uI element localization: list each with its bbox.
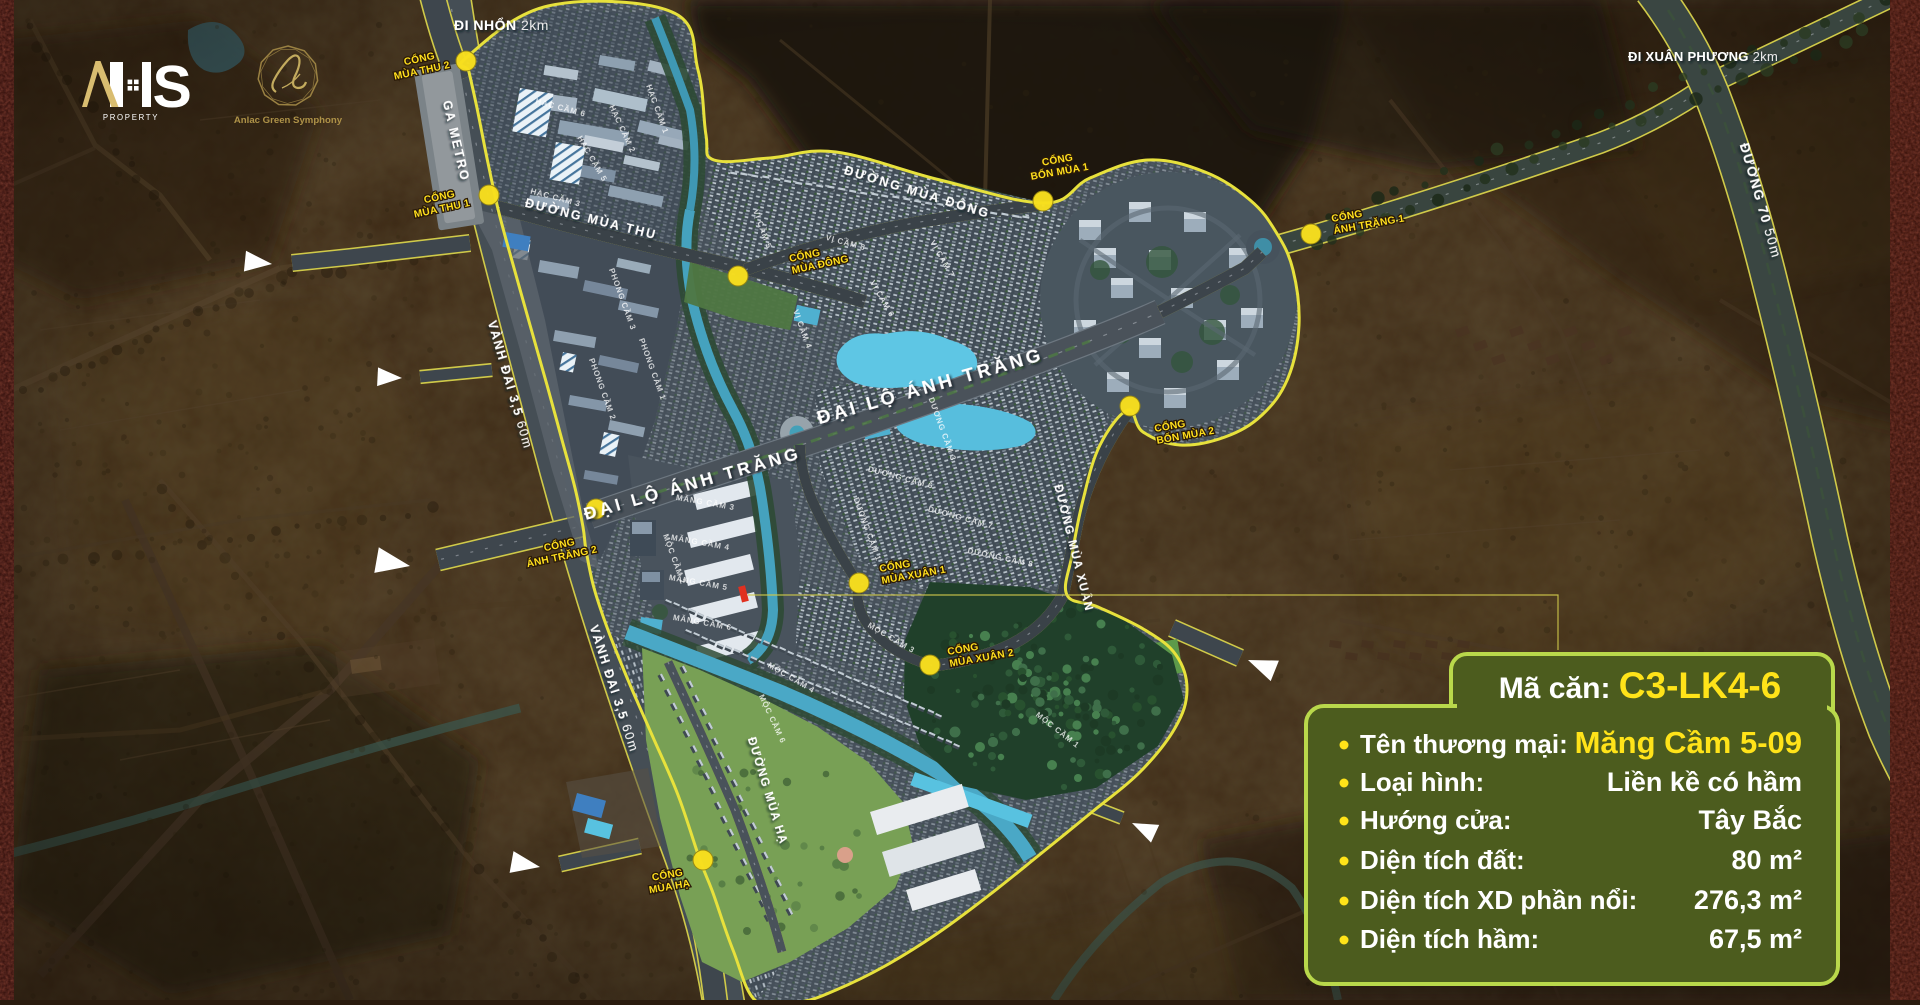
- svg-text:Diện tích đất:: Diện tích đất:: [1360, 845, 1525, 875]
- svg-text:ĐI NHỔN 2km: ĐI NHỔN 2km: [454, 16, 549, 33]
- svg-text:Tây Bắc: Tây Bắc: [1698, 804, 1802, 835]
- svg-text:Loại hình:: Loại hình:: [1360, 767, 1484, 797]
- svg-text:PROPERTY: PROPERTY: [103, 113, 159, 122]
- svg-text:S: S: [153, 54, 192, 120]
- svg-text:80 m²: 80 m²: [1731, 845, 1802, 875]
- svg-text:276,3 m²: 276,3 m²: [1694, 885, 1802, 915]
- svg-text:Liền kề có hầm: Liền kề có hầm: [1607, 767, 1802, 797]
- svg-text:Măng Cầm 5-09: Măng Cầm 5-09: [1575, 725, 1802, 760]
- svg-text:67,5 m²: 67,5 m²: [1709, 924, 1802, 954]
- svg-text:ĐI XUÂN PHƯƠNG 2km: ĐI XUÂN PHƯƠNG 2km: [1628, 49, 1778, 64]
- svg-text:Tên thương mại:: Tên thương mại:: [1360, 729, 1568, 759]
- svg-text:Diện tích XD phần nổi:: Diện tích XD phần nổi:: [1360, 885, 1637, 915]
- svg-text:Anlac Green Symphony: Anlac Green Symphony: [234, 115, 343, 126]
- svg-text:Mã căn: C3-LK4-6: Mã căn: C3-LK4-6: [1499, 665, 1781, 706]
- svg-text:Diện tích hầm:: Diện tích hầm:: [1360, 924, 1539, 954]
- svg-text:Hướng cửa:: Hướng cửa:: [1360, 805, 1511, 835]
